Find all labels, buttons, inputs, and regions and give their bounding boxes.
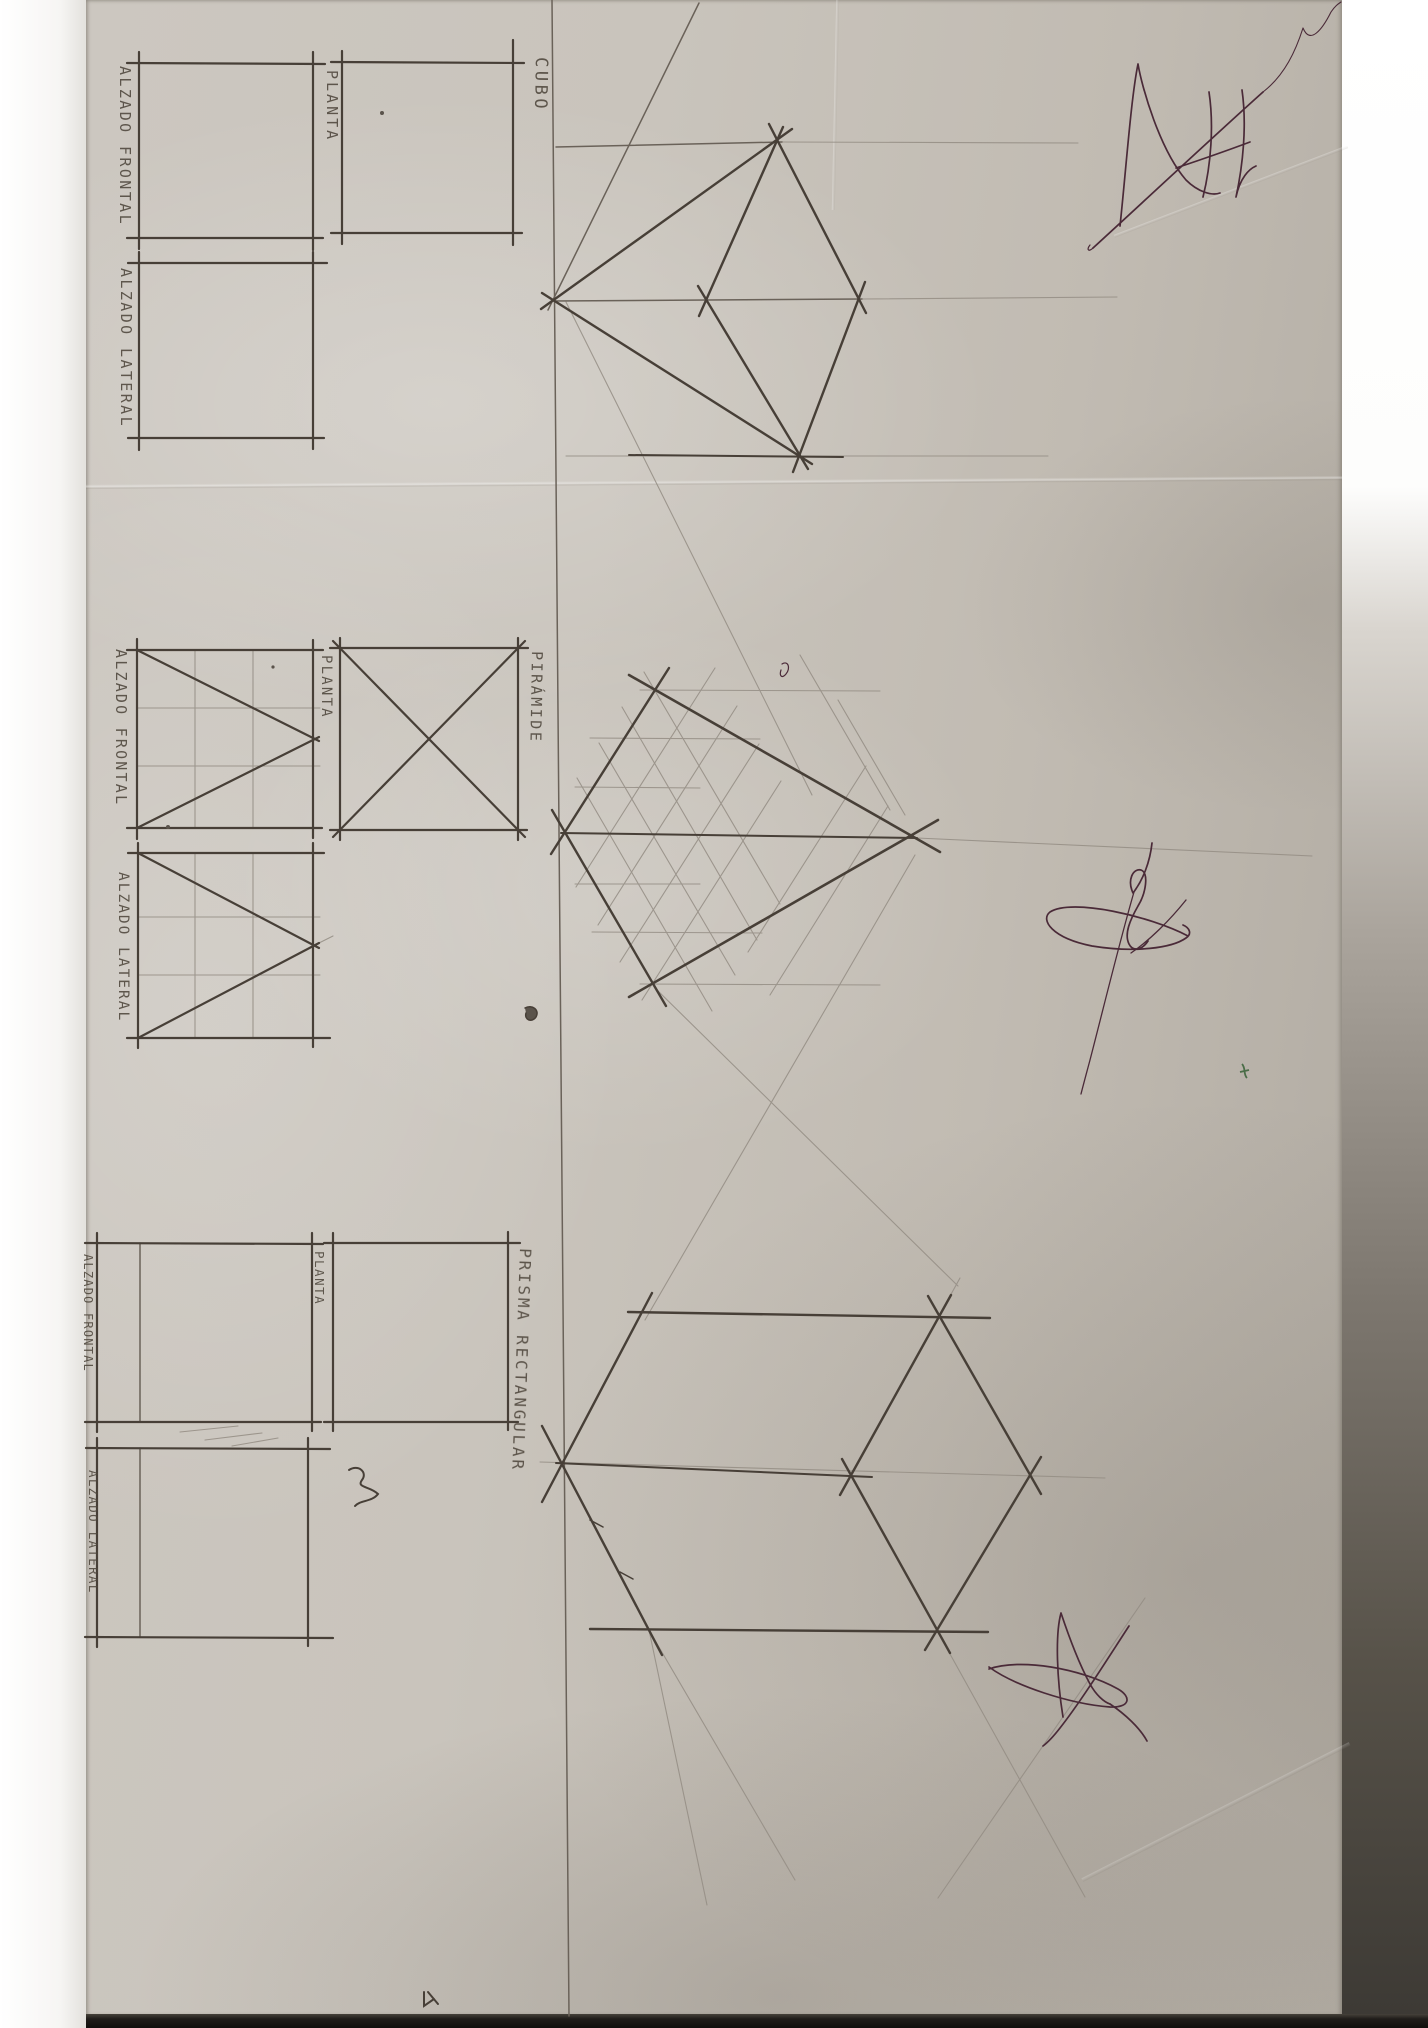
cube-frontal-label: ALZADO FRONTAL	[116, 66, 134, 226]
pyramid-frontal-label: ALZADO FRONTAL	[112, 649, 130, 806]
pyramid-plan-view	[330, 638, 528, 840]
pyramid-lateral-view	[127, 843, 330, 1048]
pyramid-lateral-label: ALZADO LATERAL	[115, 872, 131, 1022]
cube-lateral-view-square	[128, 252, 327, 450]
signature-bottom-right	[989, 1613, 1147, 1746]
prism-frontal-view	[85, 1233, 323, 1432]
pyramid-plan-label: PLANTA	[318, 655, 334, 719]
cube-frontal-view-square	[127, 52, 325, 250]
stray-pen-mark	[780, 663, 788, 677]
stray-pencil-marks	[166, 111, 537, 2006]
green-fiber-speck	[1240, 1064, 1249, 1078]
pyramid-frontal-view	[127, 639, 323, 839]
pencil-dark-drawings	[85, 40, 1041, 2006]
pen-signatures	[780, 2, 1341, 1746]
cube-plan-label: PLANTA	[323, 70, 341, 142]
prism-lateral-view	[85, 1438, 333, 1647]
handwritten-labels: ALZADO FRONTAL ALZADO LATERAL PLANTA CUB…	[81, 57, 551, 1594]
prism-frontal-label: ALZADO FRONTAL	[81, 1254, 95, 1372]
signature-middle-right	[1047, 843, 1190, 1094]
photo-of-hand-drawn-technical-sheet: ALZADO FRONTAL ALZADO LATERAL PLANTA CUB…	[0, 0, 1428, 2028]
drawing-layer: ALZADO FRONTAL ALZADO LATERAL PLANTA CUB…	[0, 0, 1428, 2028]
cube-title-label: CUBO	[530, 57, 551, 112]
cube-lateral-label: ALZADO LATERAL	[117, 268, 135, 428]
signature-top-right	[1088, 2, 1341, 250]
cube-isometric-drawing	[541, 124, 866, 472]
prism-lateral-label: ALZADO LATERAL	[86, 1470, 101, 1594]
cube-plan-view-square	[331, 40, 524, 245]
prism-plan-label: PLANTA	[312, 1251, 327, 1305]
prism-title-label: PRISMA RECTANGULAR	[508, 1248, 535, 1472]
pencil-medium-lines	[140, 0, 862, 2016]
prism-plan-view	[324, 1232, 520, 1431]
pyramid-title-label: PIRÁMIDE	[526, 651, 547, 744]
